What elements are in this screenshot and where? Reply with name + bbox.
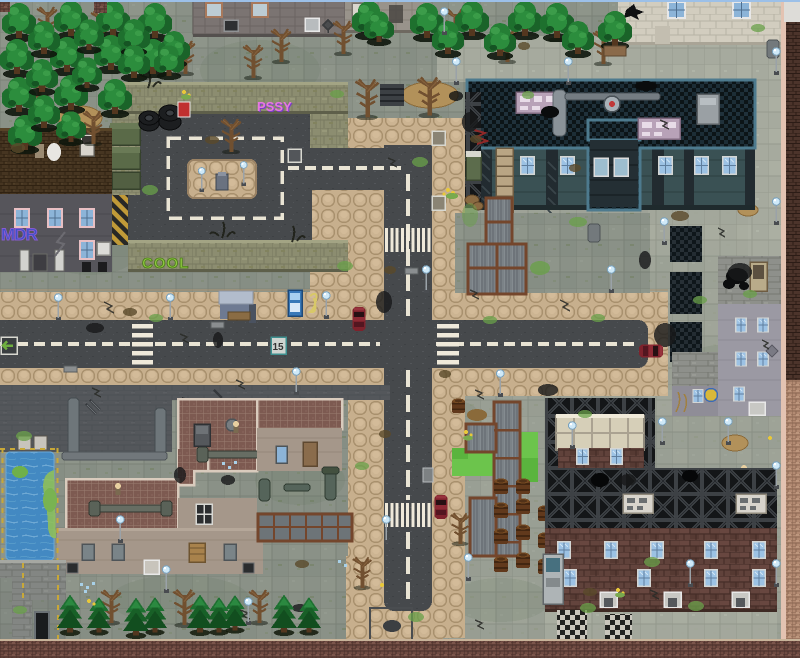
svg-text:MDR: MDR — [1, 225, 37, 244]
svg-text:15: 15 — [272, 342, 284, 353]
svg-text:PSSY: PSSY — [257, 99, 292, 114]
svg-text:COOL: COOL — [142, 255, 189, 272]
